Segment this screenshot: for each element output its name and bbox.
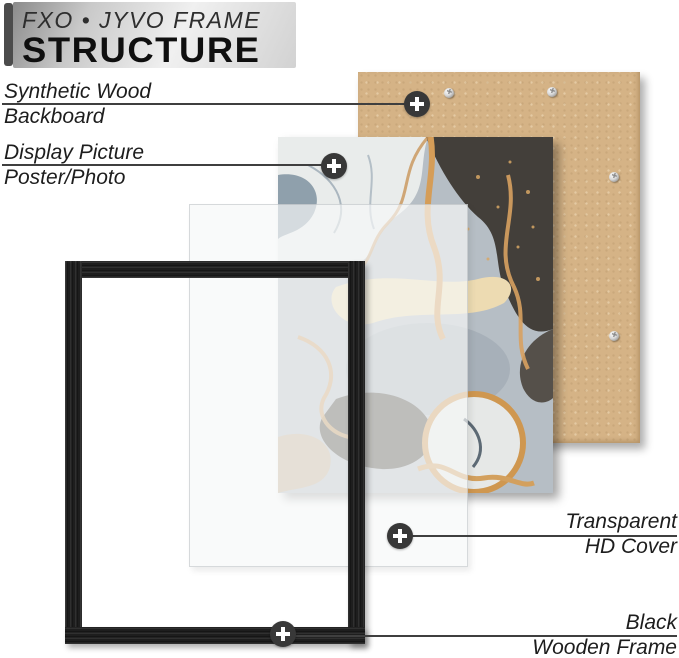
crosshair-marker-cover-icon [387, 523, 413, 549]
label-backboard-line2: Backboard [4, 105, 151, 128]
label-backboard: Synthetic Wood Backboard [4, 80, 151, 128]
label-cover-line1: Transparent [565, 510, 677, 533]
frame-layer [65, 261, 365, 644]
label-frame-line1: Black [532, 611, 677, 634]
label-frame: Black Wooden Frame [532, 611, 677, 658]
label-cover-line2: HD Cover [565, 535, 677, 558]
crosshair-marker-backboard-icon [404, 91, 430, 117]
label-frame-line2: Wooden Frame [532, 636, 677, 658]
screw-icon [444, 88, 454, 98]
label-picture-line2: Poster/Photo [4, 166, 144, 189]
brand-accent-bar [4, 3, 13, 66]
product-structure-diagram: Synthetic Wood Backboard Display Picture… [0, 0, 679, 658]
frame-left-bar [65, 261, 82, 644]
screw-icon [609, 172, 619, 182]
crosshair-marker-picture-icon [321, 153, 347, 179]
page-title: STRUCTURE [22, 31, 307, 71]
brand-text: FXO • JYVO FRAME [22, 7, 296, 34]
frame-top-bar [65, 261, 365, 278]
label-backboard-line1: Synthetic Wood [4, 80, 151, 103]
frame-right-bar [348, 261, 365, 644]
screw-icon [609, 331, 619, 341]
label-picture-line1: Display Picture [4, 141, 144, 164]
label-picture: Display Picture Poster/Photo [4, 141, 144, 189]
label-cover: Transparent HD Cover [565, 510, 677, 558]
screw-icon [547, 87, 557, 97]
crosshair-marker-frame-icon [270, 621, 296, 647]
header: FXO • JYVO FRAME STRUCTURE [13, 2, 296, 68]
